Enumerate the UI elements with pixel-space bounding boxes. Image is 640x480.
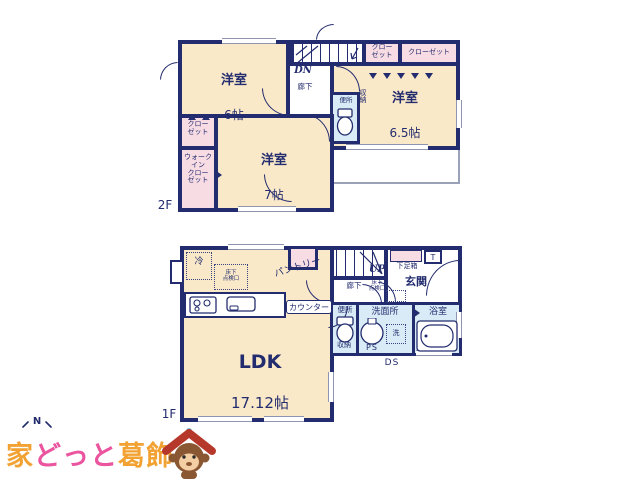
brand-text-part2: どっと xyxy=(34,434,118,473)
room-label-bedroom7: 洋室 7帖 xyxy=(238,136,310,184)
north-indicator: N xyxy=(22,416,52,432)
brand-text-part1: 家 xyxy=(6,434,34,473)
stairs-dn-label: DN xyxy=(290,65,316,78)
room-label-bedroom65: 洋室 6.5帖 xyxy=(368,74,442,120)
toilet-icon xyxy=(335,108,355,138)
hallway-label: 廊下 xyxy=(290,83,320,94)
window xyxy=(328,372,334,402)
folding-door-marks xyxy=(366,64,458,74)
closet-label: クロー ゼット xyxy=(182,121,214,141)
bathroom-label: 浴室 xyxy=(420,307,456,319)
pipe-space-label: PS xyxy=(362,344,382,355)
toilet-icon xyxy=(334,316,356,344)
casement-window-arc xyxy=(160,62,178,80)
closet-label: クロー ゼット xyxy=(364,44,400,64)
shoe-box-label: 下足箱 xyxy=(390,263,424,273)
door-arc-stair-top xyxy=(316,24,334,40)
ldk-label: LDK 17.12帖 xyxy=(200,334,320,388)
wic-label: ウォーク イン クロー ゼット xyxy=(181,154,215,204)
floor-2f-label: 2F xyxy=(152,199,178,213)
fridge-space: 冷 xyxy=(186,252,212,280)
window xyxy=(456,100,462,128)
toilet-label: 便所 xyxy=(334,97,358,107)
duct-space-label: DS xyxy=(380,358,404,370)
counter-label: カウンター xyxy=(286,300,332,314)
stove-icon xyxy=(189,296,217,314)
underfloor-hatch-hall-label: 床下 点検口 xyxy=(364,280,390,296)
shoe-box xyxy=(390,250,422,262)
brand-logo-text: 家 どっと 葛飾 xyxy=(6,434,174,473)
floor-2f-plan: 洋室 6帖 洋室 6.5帖 洋室 7帖 クロー ゼット クローゼット クロー ゼ… xyxy=(0,0,640,240)
closet-label: クローゼット xyxy=(400,49,458,59)
bathtub-icon xyxy=(416,320,458,352)
north-label: N xyxy=(31,416,43,427)
toilet-label: 便所 xyxy=(332,306,358,316)
bathroom-door-mark xyxy=(413,308,420,318)
window xyxy=(228,244,284,250)
washer-space: 洗 xyxy=(386,324,406,344)
monkey-mascot-icon xyxy=(160,424,218,480)
window xyxy=(222,38,276,44)
floorplan-sheet: 洋室 6帖 洋室 6.5帖 洋室 7帖 クロー ゼット クローゼット クロー ゼ… xyxy=(0,0,640,480)
washroom-label: 洗面所 xyxy=(362,307,408,319)
room-label-bedroom6: 洋室 6帖 xyxy=(198,56,270,104)
watermark: N 家 どっと 葛飾 xyxy=(0,408,260,480)
toilet-storage-label: 収納 xyxy=(330,342,358,352)
kitchen-sink-icon xyxy=(226,295,256,313)
wic-door-mark xyxy=(215,170,222,180)
stairs-up-label: UP xyxy=(364,264,390,277)
window xyxy=(170,260,184,284)
wash-basin-icon xyxy=(358,318,386,346)
underfloor-hatch-kitchen: 床下 点検口 xyxy=(214,264,248,290)
storage-label: 収 納 xyxy=(357,90,369,112)
entrance-label: 玄関 xyxy=(396,276,436,290)
hallway-label: 廊下 xyxy=(342,282,366,293)
t-box: T xyxy=(424,250,442,264)
